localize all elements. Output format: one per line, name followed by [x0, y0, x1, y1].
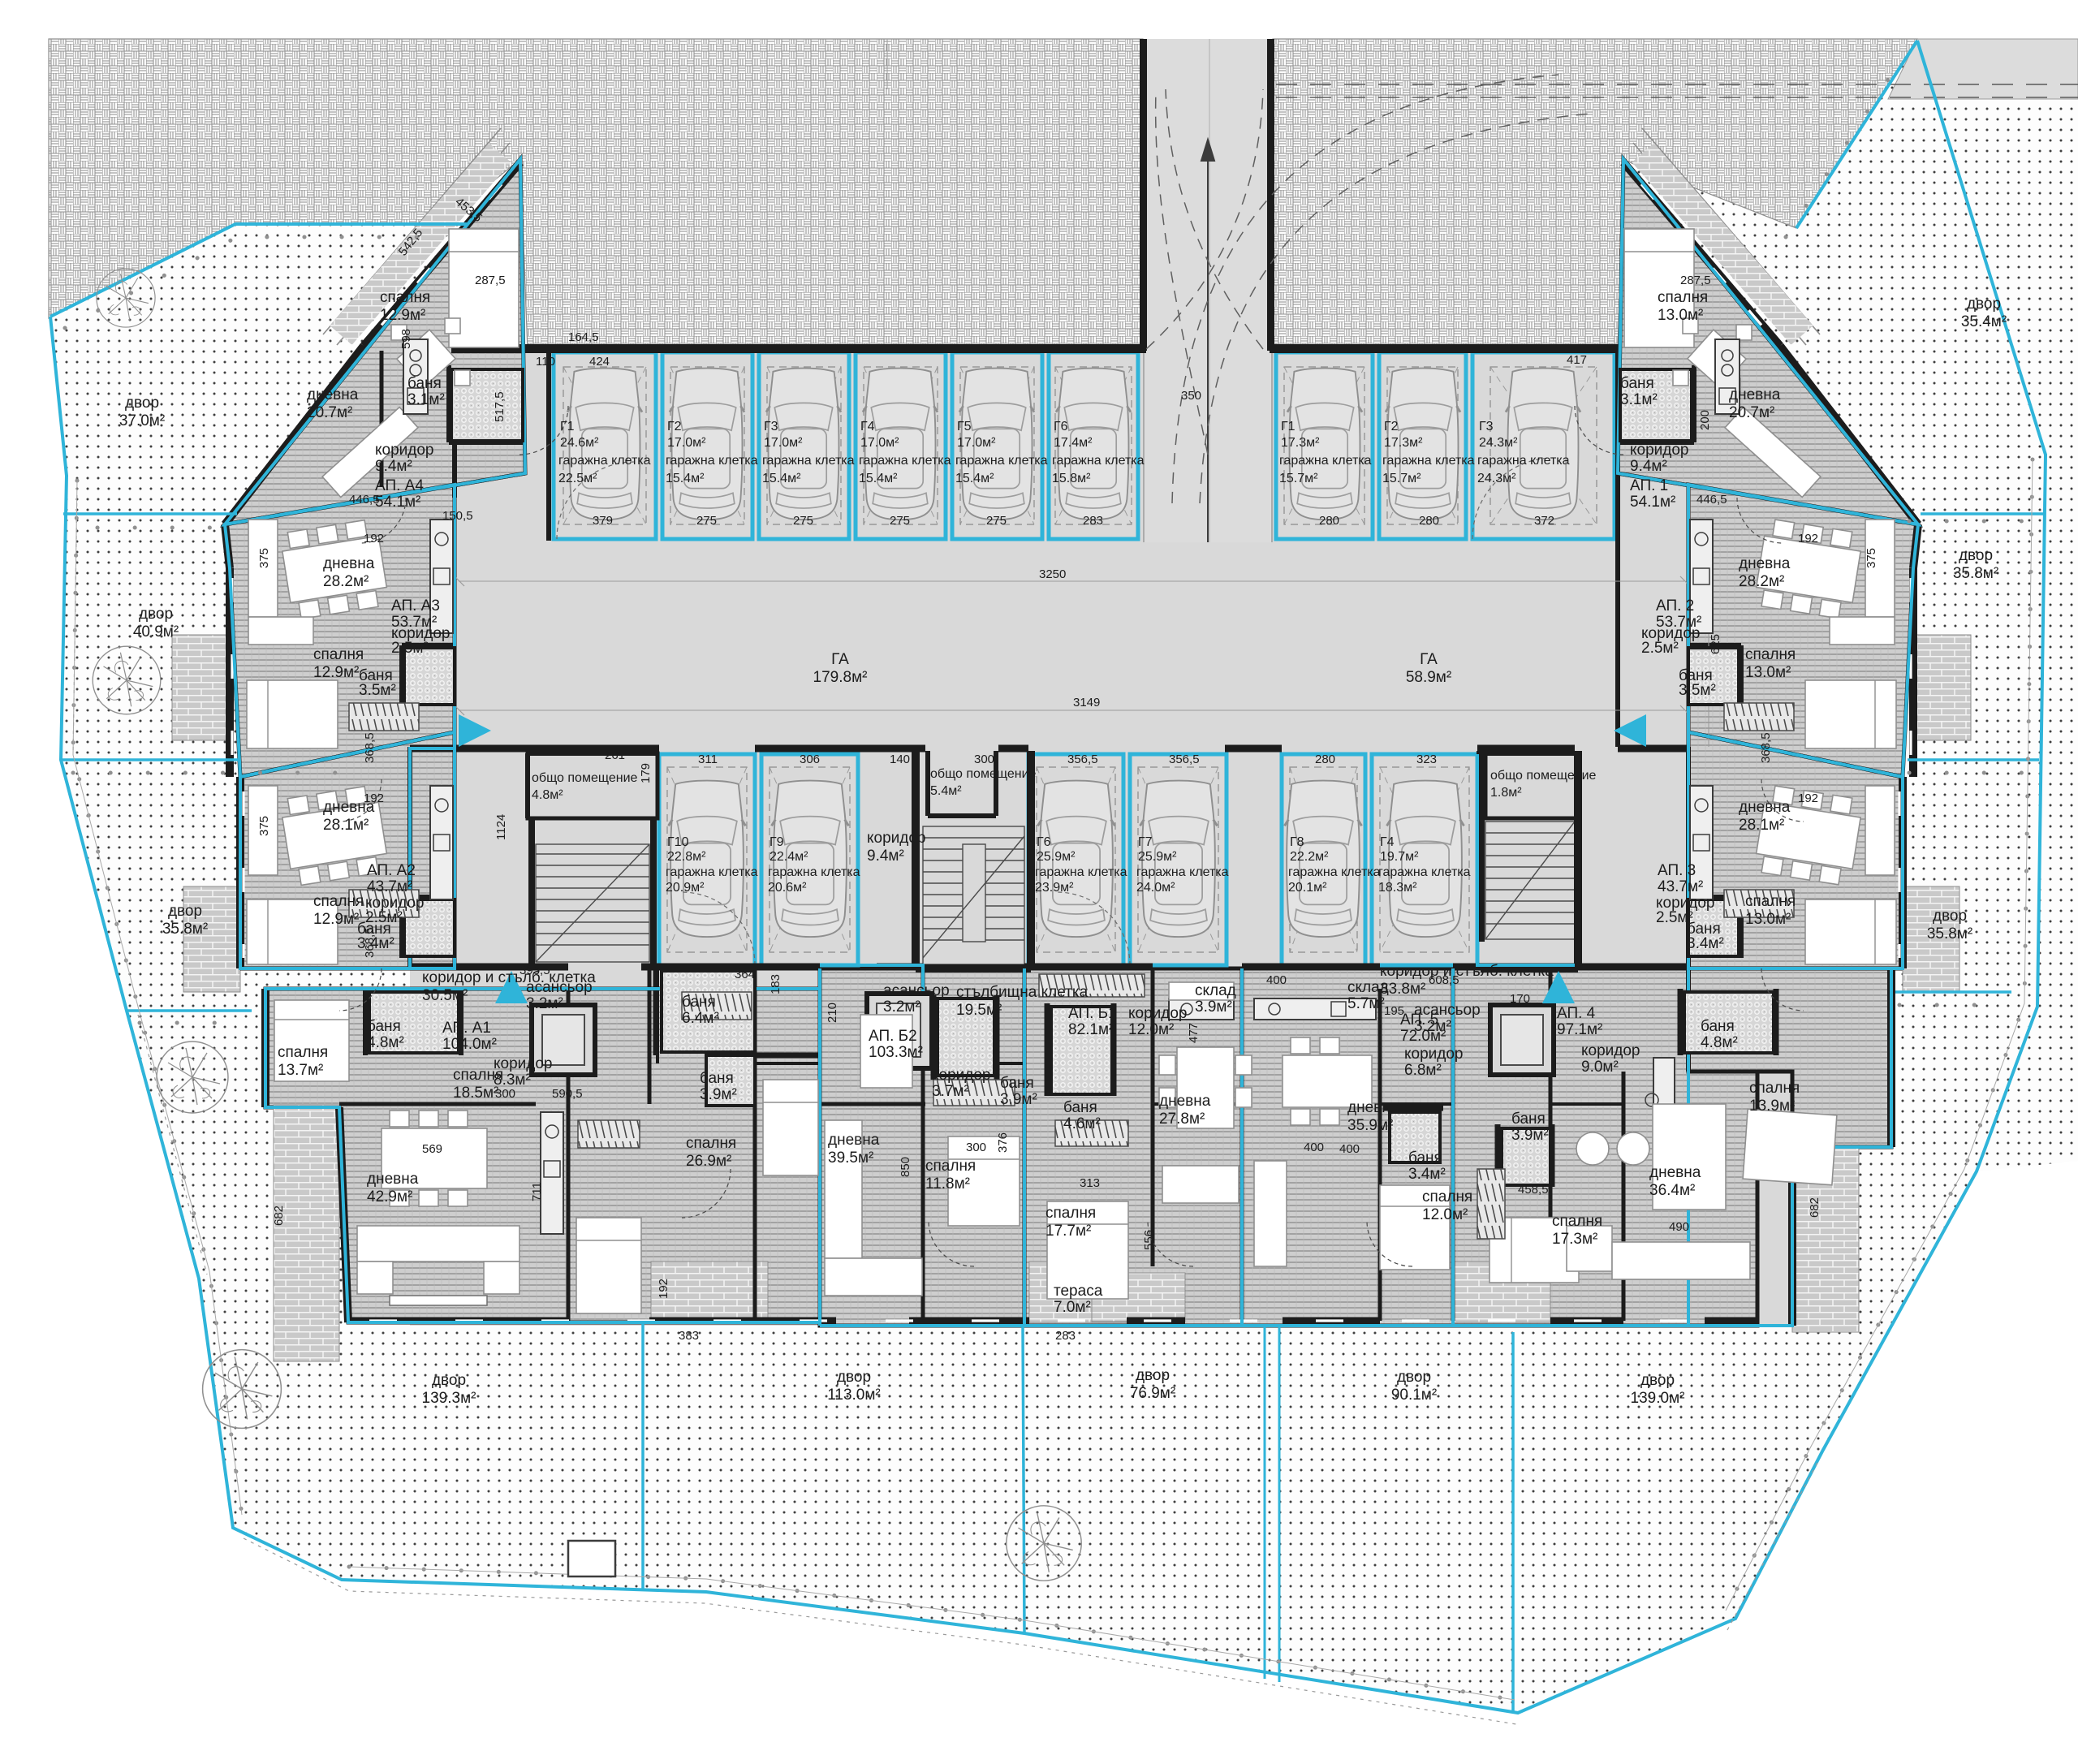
svg-text:17.3м²: 17.3м² [1552, 1231, 1597, 1248]
svg-text:15.4м²: 15.4м² [955, 472, 994, 485]
svg-text:коридор: коридор [375, 442, 434, 459]
svg-text:Г3: Г3 [764, 420, 778, 433]
svg-text:608,5: 608,5 [1429, 973, 1459, 987]
svg-text:261: 261 [605, 748, 625, 762]
svg-text:210: 210 [826, 1003, 839, 1023]
svg-text:556: 556 [1142, 1230, 1156, 1250]
svg-text:АП. А3: АП. А3 [391, 597, 440, 615]
svg-text:15.7м²: 15.7м² [1382, 472, 1421, 485]
svg-text:28.2м²: 28.2м² [323, 573, 369, 590]
svg-text:35.8м²: 35.8м² [1953, 565, 1998, 582]
svg-text:368,5: 368,5 [363, 927, 377, 958]
svg-text:13.7м²: 13.7м² [278, 1062, 323, 1079]
svg-text:АП. 1: АП. 1 [1630, 477, 1668, 494]
svg-text:17.3м²: 17.3м² [1281, 436, 1320, 450]
svg-text:4.8м²: 4.8м² [367, 1034, 404, 1051]
svg-text:3.4м²: 3.4м² [1687, 935, 1724, 952]
svg-text:17.3м²: 17.3м² [1384, 436, 1423, 450]
svg-text:6.8м²: 6.8м² [1404, 1062, 1442, 1079]
svg-text:13.0м²: 13.0м² [1658, 307, 1703, 324]
svg-text:2.5м²: 2.5м² [1641, 640, 1679, 657]
svg-text:22.4м²: 22.4м² [770, 850, 808, 864]
svg-text:39.5м²: 39.5м² [828, 1149, 873, 1167]
svg-text:двор: двор [1959, 547, 1993, 564]
svg-text:3149: 3149 [1073, 696, 1100, 709]
svg-text:дневна: дневна [323, 555, 375, 572]
svg-text:двор: двор [1967, 295, 2001, 313]
svg-text:двор: двор [168, 903, 202, 920]
svg-text:376: 376 [996, 1132, 1010, 1153]
svg-text:590,5: 590,5 [552, 1087, 583, 1101]
svg-text:200: 200 [1698, 410, 1712, 430]
svg-text:дневна: дневна [1729, 386, 1781, 403]
svg-text:323: 323 [1416, 753, 1437, 766]
svg-text:139.3м²: 139.3м² [422, 1390, 476, 1407]
svg-text:103.3м²: 103.3м² [869, 1044, 923, 1061]
svg-text:58.9м²: 58.9м² [1406, 669, 1451, 686]
svg-text:4.8м²: 4.8м² [1701, 1034, 1738, 1051]
svg-text:коридор: коридор [1404, 1046, 1464, 1063]
svg-text:спалня: спалня [380, 289, 430, 306]
svg-text:гаражна клетка: гаражна клетка [1382, 454, 1475, 468]
svg-text:17.0м²: 17.0м² [764, 436, 803, 450]
svg-text:3.5м²: 3.5м² [359, 682, 396, 699]
svg-text:двор: двор [139, 606, 173, 623]
svg-text:15.4м²: 15.4м² [666, 472, 705, 485]
svg-text:35.9м²: 35.9м² [1347, 1117, 1393, 1134]
svg-text:дневна: дневна [1649, 1164, 1701, 1181]
svg-text:склад: склад [1195, 982, 1236, 999]
svg-text:711: 711 [530, 1182, 544, 1201]
svg-text:11.8м²: 11.8м² [925, 1175, 970, 1193]
svg-text:393,5: 393,5 [519, 964, 550, 977]
svg-text:20.7м²: 20.7м² [1729, 404, 1774, 421]
svg-text:400: 400 [1266, 973, 1287, 987]
svg-text:Г1: Г1 [560, 420, 575, 433]
svg-text:19.7м²: 19.7м² [1380, 850, 1419, 864]
svg-text:17.0м²: 17.0м² [667, 436, 706, 450]
svg-text:458,5: 458,5 [1518, 1183, 1549, 1197]
svg-text:3.7м²: 3.7м² [932, 1083, 969, 1100]
svg-text:364: 364 [735, 968, 755, 981]
svg-text:311: 311 [698, 753, 718, 766]
svg-text:25.9м²: 25.9м² [1138, 850, 1177, 864]
svg-text:12.0м²: 12.0м² [1128, 1021, 1174, 1038]
svg-text:110: 110 [536, 355, 555, 369]
svg-text:139.0м²: 139.0м² [1631, 1390, 1685, 1407]
svg-text:383: 383 [679, 1329, 699, 1343]
svg-text:7.0м²: 7.0м² [1054, 1299, 1091, 1316]
svg-text:спалня: спалня [1749, 1080, 1800, 1097]
svg-text:350: 350 [1181, 389, 1201, 403]
svg-text:гаражна клетка: гаражна клетка [955, 454, 1048, 468]
svg-text:баня: баня [1000, 1075, 1034, 1092]
svg-text:баня: баня [682, 994, 716, 1011]
svg-text:192: 192 [1798, 532, 1818, 546]
svg-text:375: 375 [1865, 548, 1878, 568]
svg-text:22.2м²: 22.2м² [1290, 850, 1329, 864]
svg-text:Г2: Г2 [1384, 420, 1399, 433]
svg-text:баня: баня [1701, 1018, 1735, 1035]
svg-text:Г8: Г8 [1290, 835, 1304, 849]
svg-text:33.8м²: 33.8м² [1380, 981, 1425, 998]
svg-text:Г7: Г7 [1138, 835, 1153, 849]
svg-text:9.4м²: 9.4м² [1630, 458, 1667, 475]
svg-text:гаражна клетка: гаражна клетка [1279, 454, 1372, 468]
svg-text:ГА: ГА [831, 651, 849, 668]
svg-text:113.0м²: 113.0м² [827, 1387, 881, 1404]
svg-text:625: 625 [1709, 634, 1722, 654]
svg-text:спалня: спалня [1658, 289, 1708, 306]
svg-text:140: 140 [890, 753, 910, 766]
svg-text:17.4м²: 17.4м² [1054, 436, 1093, 450]
svg-text:гаражна клетка: гаражна клетка [1288, 865, 1381, 879]
svg-text:313: 313 [1080, 1176, 1100, 1190]
svg-text:Г4: Г4 [860, 420, 875, 433]
svg-text:42.9м²: 42.9м² [367, 1188, 412, 1205]
svg-text:баня: баня [1063, 1099, 1097, 1116]
svg-text:192: 192 [1798, 791, 1818, 805]
svg-text:18.5м²: 18.5м² [453, 1085, 498, 1102]
svg-text:двор: двор [1640, 1372, 1675, 1389]
svg-text:спалня: спалня [1745, 646, 1796, 663]
svg-text:517,5: 517,5 [493, 391, 507, 422]
svg-text:287,5: 287,5 [475, 274, 506, 287]
svg-text:183: 183 [769, 974, 782, 994]
svg-text:20.1м²: 20.1м² [1288, 881, 1327, 895]
svg-text:36.4м²: 36.4м² [1649, 1182, 1695, 1199]
svg-text:76.9м²: 76.9м² [1130, 1385, 1175, 1402]
svg-text:104.0м²: 104.0м² [442, 1036, 497, 1053]
svg-text:682: 682 [1808, 1197, 1821, 1218]
svg-text:асансьор: асансьор [526, 979, 593, 996]
svg-text:гаражна клетка: гаражна клетка [666, 865, 758, 879]
svg-text:гаражна клетка: гаражна клетка [666, 454, 758, 468]
svg-text:АП. Б1: АП. Б1 [1068, 1005, 1117, 1022]
svg-text:коридор и стълб. клетка: коридор и стълб. клетка [1380, 963, 1554, 980]
svg-text:Г10: Г10 [667, 835, 689, 849]
svg-text:35.8м²: 35.8м² [162, 921, 208, 938]
svg-text:28.1м²: 28.1м² [323, 817, 369, 834]
svg-text:гаражна клетка: гаражна клетка [1378, 865, 1471, 879]
svg-text:3.1м²: 3.1м² [407, 391, 445, 408]
svg-text:400: 400 [1304, 1141, 1324, 1154]
svg-text:20.6м²: 20.6м² [768, 881, 807, 895]
svg-text:569: 569 [422, 1142, 442, 1156]
svg-text:12.9м²: 12.9м² [313, 664, 359, 681]
svg-text:22.8м²: 22.8м² [667, 850, 706, 864]
svg-text:170: 170 [1510, 992, 1530, 1006]
svg-text:3.9м²: 3.9м² [1195, 998, 1232, 1016]
svg-text:490: 490 [1669, 1220, 1689, 1234]
svg-text:275: 275 [890, 514, 910, 528]
svg-text:54.1м²: 54.1м² [375, 494, 420, 511]
svg-text:417: 417 [1567, 353, 1587, 367]
svg-text:280: 280 [1319, 514, 1339, 528]
svg-text:356,5: 356,5 [1169, 753, 1200, 766]
svg-text:коридор: коридор [1128, 1005, 1188, 1022]
svg-text:дневна: дневна [828, 1132, 880, 1149]
svg-text:АП. 2: АП. 2 [1656, 597, 1694, 615]
svg-text:424: 424 [589, 355, 610, 369]
svg-text:280: 280 [1419, 514, 1439, 528]
svg-text:спалня: спалня [313, 646, 364, 663]
svg-text:коридор: коридор [867, 830, 926, 847]
svg-text:9.4м²: 9.4м² [867, 847, 904, 865]
svg-text:АП. Б2: АП. Б2 [869, 1028, 917, 1045]
svg-text:40.9м²: 40.9м² [133, 623, 179, 640]
svg-text:20.9м²: 20.9м² [666, 881, 705, 895]
svg-text:192: 192 [657, 1279, 670, 1299]
svg-text:тераса: тераса [1054, 1283, 1103, 1300]
svg-text:15.4м²: 15.4м² [859, 472, 898, 485]
svg-text:24.3м²: 24.3м² [1479, 436, 1518, 450]
svg-text:ГА: ГА [1420, 651, 1438, 668]
svg-text:375: 375 [257, 548, 271, 568]
svg-text:19.5м²: 19.5м² [956, 1002, 1002, 1019]
svg-text:гаражна клетка: гаражна клетка [768, 865, 860, 879]
svg-text:90.1м²: 90.1м² [1391, 1387, 1437, 1404]
svg-text:гаражна клетка: гаражна клетка [762, 454, 855, 468]
svg-text:356,5: 356,5 [1067, 753, 1098, 766]
svg-text:5.7м²: 5.7м² [1347, 995, 1385, 1012]
svg-text:баня: баня [1408, 1149, 1442, 1167]
svg-text:368,5: 368,5 [363, 732, 377, 763]
svg-text:Г9: Г9 [770, 835, 784, 849]
svg-text:275: 275 [696, 514, 717, 528]
svg-text:300: 300 [966, 1141, 986, 1154]
svg-text:гаражна клетка: гаражна клетка [1136, 865, 1229, 879]
svg-text:598: 598 [399, 329, 413, 349]
svg-text:гаражна клетка: гаражна клетка [1035, 865, 1127, 879]
svg-text:850: 850 [899, 1157, 912, 1177]
svg-text:общо помещение: общо помещение [930, 767, 1037, 781]
svg-text:306: 306 [800, 753, 820, 766]
svg-text:Г4: Г4 [1380, 835, 1395, 849]
svg-text:179.8м²: 179.8м² [813, 669, 868, 686]
svg-text:35.8м²: 35.8м² [1927, 925, 1972, 942]
svg-text:спалня: спалня [686, 1135, 736, 1152]
svg-text:15.8м²: 15.8м² [1052, 472, 1091, 485]
svg-text:3.2м²: 3.2м² [526, 995, 563, 1012]
svg-text:3.9м²: 3.9м² [1000, 1091, 1037, 1108]
svg-text:195: 195 [1384, 1004, 1404, 1018]
svg-text:спалня: спалня [453, 1067, 503, 1084]
svg-text:дневна: дневна [307, 386, 359, 403]
svg-text:АП. 4: АП. 4 [1557, 1005, 1596, 1022]
svg-text:гаражна клетка: гаражна клетка [558, 454, 651, 468]
svg-text:АП. 3: АП. 3 [1658, 862, 1696, 879]
svg-text:коридор: коридор [1630, 442, 1689, 459]
svg-text:375: 375 [257, 816, 271, 836]
svg-text:9.4м²: 9.4м² [375, 458, 412, 475]
svg-text:Г3: Г3 [1479, 420, 1494, 433]
svg-text:82.1м²: 82.1м² [1068, 1021, 1114, 1038]
svg-text:Г1: Г1 [1281, 420, 1296, 433]
svg-text:гаражна клетка: гаражна клетка [1477, 454, 1570, 468]
svg-text:коридор: коридор [932, 1067, 991, 1084]
svg-text:13.0м²: 13.0м² [1745, 911, 1791, 928]
svg-text:54.1м²: 54.1м² [1630, 494, 1675, 511]
svg-text:спалня: спалня [1045, 1205, 1096, 1222]
svg-text:баня: баня [1511, 1111, 1546, 1128]
svg-text:спалня: спалня [313, 893, 364, 910]
svg-text:5.4м²: 5.4м² [930, 784, 962, 798]
svg-text:баня: баня [700, 1070, 734, 1087]
svg-text:баня: баня [367, 1018, 401, 1035]
svg-text:12.9м²: 12.9м² [313, 911, 359, 928]
svg-text:15.7м²: 15.7м² [1279, 472, 1318, 485]
svg-text:Г2: Г2 [667, 420, 682, 433]
svg-text:3.2м²: 3.2м² [883, 998, 920, 1016]
svg-text:27.8м²: 27.8м² [1159, 1111, 1205, 1128]
svg-text:477: 477 [1187, 1023, 1201, 1043]
svg-text:общо помещение: общо помещение [1490, 769, 1597, 783]
svg-text:12.0м²: 12.0м² [1422, 1206, 1468, 1223]
svg-text:20.7м²: 20.7м² [307, 404, 352, 421]
svg-text:двор: двор [125, 395, 159, 412]
svg-text:275: 275 [793, 514, 813, 528]
svg-text:1.8м²: 1.8м² [1490, 786, 1522, 800]
svg-text:283: 283 [1083, 514, 1103, 528]
svg-text:17.0м²: 17.0м² [957, 436, 996, 450]
svg-text:спалня: спалня [278, 1044, 328, 1061]
svg-text:Г5: Г5 [957, 420, 972, 433]
svg-text:24.0м²: 24.0м² [1136, 881, 1175, 895]
svg-text:3250: 3250 [1039, 567, 1066, 581]
svg-text:дневна: дневна [1159, 1093, 1211, 1110]
svg-text:17.0м²: 17.0м² [860, 436, 899, 450]
svg-text:43.7м²: 43.7м² [367, 878, 412, 895]
svg-text:192: 192 [364, 791, 384, 805]
svg-text:280: 280 [1315, 753, 1335, 766]
svg-text:двор: двор [837, 1369, 871, 1386]
svg-text:9.0м²: 9.0м² [1581, 1059, 1619, 1076]
svg-text:682: 682 [272, 1205, 286, 1226]
svg-text:24.3м²: 24.3м² [1477, 472, 1516, 485]
svg-text:30.5м²: 30.5м² [422, 987, 468, 1004]
svg-text:446,5: 446,5 [349, 493, 380, 507]
svg-text:2.5м²: 2.5м² [391, 640, 429, 657]
svg-text:дневна: дневна [1347, 1099, 1399, 1116]
svg-text:150,5: 150,5 [442, 509, 473, 523]
svg-text:двор: двор [432, 1372, 466, 1389]
svg-text:300: 300 [974, 753, 994, 766]
svg-text:баня: баня [1620, 375, 1654, 392]
svg-text:379: 379 [593, 514, 613, 528]
svg-text:стълбищна клетка: стълбищна клетка [956, 984, 1089, 1001]
svg-text:300: 300 [495, 1087, 515, 1101]
svg-text:37.0м²: 37.0м² [119, 412, 165, 429]
svg-text:15.4м²: 15.4м² [762, 472, 801, 485]
svg-text:1124: 1124 [494, 814, 508, 840]
svg-text:22.5м²: 22.5м² [558, 472, 597, 485]
svg-text:асансьор: асансьор [883, 982, 950, 999]
svg-text:коридор: коридор [1581, 1042, 1640, 1059]
svg-text:372: 372 [1534, 514, 1554, 528]
svg-text:283: 283 [1055, 1329, 1076, 1343]
svg-text:179: 179 [639, 763, 653, 783]
svg-text:3.4м²: 3.4м² [1408, 1166, 1446, 1183]
svg-text:17.7м²: 17.7м² [1045, 1223, 1091, 1240]
svg-text:дневна: дневна [367, 1171, 419, 1188]
svg-text:дневна: дневна [1739, 799, 1791, 816]
svg-text:97.1м²: 97.1м² [1557, 1021, 1602, 1038]
svg-text:двор: двор [1397, 1369, 1431, 1386]
svg-text:3.9м²: 3.9м² [1511, 1127, 1549, 1144]
svg-text:26.9м²: 26.9м² [686, 1153, 731, 1170]
svg-text:дневна: дневна [1739, 555, 1791, 572]
svg-text:3.5м²: 3.5м² [1679, 682, 1716, 699]
svg-text:28.1м²: 28.1м² [1739, 817, 1784, 834]
svg-text:двор: двор [1933, 908, 1967, 925]
svg-text:24.6м²: 24.6м² [560, 436, 599, 450]
svg-text:АП. А2: АП. А2 [367, 862, 416, 879]
svg-text:43.7м²: 43.7м² [1658, 878, 1703, 895]
svg-text:4.6м²: 4.6м² [1063, 1115, 1101, 1132]
svg-text:446,5: 446,5 [1696, 493, 1727, 507]
svg-text:23.9м²: 23.9м² [1035, 881, 1074, 895]
svg-text:АП. А4: АП. А4 [375, 477, 424, 494]
svg-text:Г6: Г6 [1054, 420, 1068, 433]
svg-text:баня: баня [407, 375, 442, 392]
svg-text:18.3м²: 18.3м² [1378, 881, 1417, 895]
svg-text:спалня: спалня [1552, 1213, 1602, 1230]
svg-text:асансьор: асансьор [1414, 1002, 1481, 1019]
svg-text:4.8м²: 4.8м² [532, 788, 563, 802]
svg-text:6.4м²: 6.4м² [682, 1010, 719, 1027]
svg-text:12.9м²: 12.9м² [380, 307, 425, 324]
svg-text:3.1м²: 3.1м² [1620, 391, 1658, 408]
svg-text:3.2м²: 3.2м² [1414, 1018, 1451, 1035]
svg-text:общо помещение: общо помещение [532, 771, 638, 785]
svg-text:двор: двор [1136, 1367, 1170, 1384]
svg-text:400: 400 [1339, 1142, 1360, 1156]
svg-text:275: 275 [986, 514, 1007, 528]
svg-text:Г6: Г6 [1037, 835, 1051, 849]
svg-text:спалня: спалня [925, 1158, 976, 1175]
svg-text:28.2м²: 28.2м² [1739, 573, 1784, 590]
svg-text:287,5: 287,5 [1680, 274, 1711, 287]
svg-text:АП. А1: АП. А1 [442, 1020, 491, 1037]
svg-text:192: 192 [364, 532, 384, 546]
svg-text:спалня: спалня [1745, 893, 1796, 910]
svg-text:164,5: 164,5 [568, 330, 599, 344]
svg-text:3.9м²: 3.9м² [700, 1086, 737, 1103]
svg-text:гаражна клетка: гаражна клетка [1052, 454, 1145, 468]
svg-text:13.9м²: 13.9м² [1749, 1098, 1795, 1115]
svg-text:368,5: 368,5 [1759, 732, 1773, 763]
svg-text:гаражна клетка: гаражна клетка [859, 454, 951, 468]
svg-text:13.0м²: 13.0м² [1745, 664, 1791, 681]
svg-text:35.4м²: 35.4м² [1961, 313, 2007, 330]
svg-text:спалня: спалня [1422, 1188, 1472, 1205]
svg-text:25.9м²: 25.9м² [1037, 850, 1076, 864]
